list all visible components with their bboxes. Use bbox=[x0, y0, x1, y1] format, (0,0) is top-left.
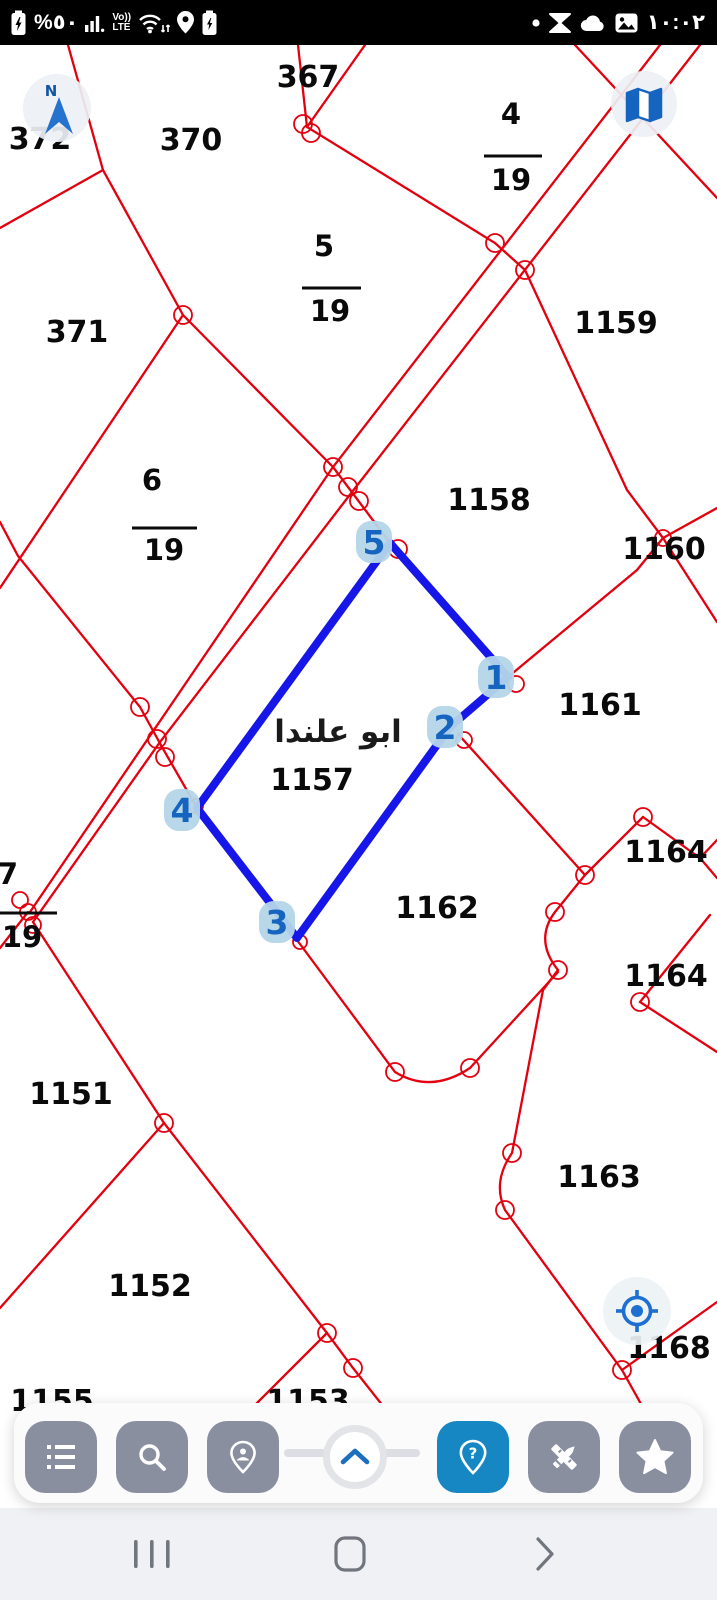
svg-text:3: 3 bbox=[266, 903, 289, 942]
back-button[interactable] bbox=[505, 1508, 585, 1600]
notification-dot-icon bbox=[532, 19, 540, 27]
fraction-denominator: 19 bbox=[310, 294, 350, 328]
battery-charging-icon bbox=[10, 10, 27, 36]
parcel-label: 1161 bbox=[558, 688, 642, 723]
vertex-badge-5[interactable]: 5 bbox=[356, 521, 392, 563]
map-layers-button[interactable] bbox=[611, 71, 677, 137]
map-canvas[interactable]: 372 370 367 371 1159 1158 1160 1161 1157… bbox=[0, 45, 717, 1600]
pencil-ruler-icon bbox=[546, 1439, 582, 1475]
svg-text:?: ? bbox=[469, 1445, 478, 1463]
wifi-updown-icon bbox=[138, 11, 170, 35]
parcel-label: 1164 bbox=[624, 835, 708, 870]
parcel-label: 1164 bbox=[624, 959, 708, 994]
parcel-label: 1160 bbox=[622, 532, 706, 567]
clock-label: ١٠:٠٢ bbox=[647, 10, 705, 35]
gallery-icon bbox=[615, 13, 638, 33]
person-pin-icon bbox=[229, 1440, 257, 1474]
vertex-badge-4[interactable]: 4 bbox=[164, 789, 200, 831]
cloud-icon bbox=[580, 13, 606, 32]
fraction-numerator: 7 bbox=[0, 857, 18, 891]
battery-percent-label: %٥٠ bbox=[34, 12, 78, 33]
signal-strength-icon bbox=[85, 12, 105, 34]
fraction-denominator: 19 bbox=[144, 533, 184, 567]
status-left-cluster: %٥٠ Vo)) LTE bbox=[10, 10, 218, 36]
favorites-button[interactable] bbox=[619, 1421, 691, 1493]
star-icon bbox=[636, 1439, 674, 1475]
legend-list-button[interactable] bbox=[25, 1421, 97, 1493]
fraction-denominator: 19 bbox=[2, 920, 42, 954]
search-icon bbox=[137, 1442, 167, 1472]
compass-north-label: N bbox=[45, 82, 58, 100]
parcel-label: 367 bbox=[277, 60, 340, 95]
recents-button[interactable] bbox=[112, 1508, 192, 1600]
home-icon bbox=[333, 1535, 367, 1573]
parcel-label: 1159 bbox=[574, 306, 658, 341]
status-right-cluster: ١٠:٠٢ bbox=[532, 10, 705, 35]
home-button[interactable] bbox=[310, 1508, 390, 1600]
parcel-label: 1163 bbox=[557, 1160, 641, 1195]
vertex-badge-2[interactable]: 2 bbox=[427, 706, 463, 748]
list-icon bbox=[46, 1444, 76, 1470]
hourglass-icon bbox=[549, 13, 571, 33]
measure-tools-button[interactable] bbox=[528, 1421, 600, 1493]
parcel-label: 1158 bbox=[447, 483, 531, 518]
selected-parcel-label: 1157 bbox=[270, 763, 354, 798]
folded-map-icon bbox=[627, 89, 661, 121]
fraction-numerator: 4 bbox=[501, 97, 521, 131]
volte-icon: Vo)) LTE bbox=[112, 13, 131, 33]
svg-text:2: 2 bbox=[434, 708, 457, 747]
parcel-label: 1151 bbox=[29, 1077, 113, 1112]
fraction-numerator: 5 bbox=[314, 229, 334, 263]
svg-text:1: 1 bbox=[485, 658, 508, 697]
map-background bbox=[0, 45, 717, 1600]
android-navigation-bar bbox=[0, 1508, 717, 1600]
parcel-label: 1162 bbox=[395, 891, 479, 926]
fraction-denominator: 19 bbox=[491, 163, 531, 197]
phone-screen: %٥٠ Vo)) LTE bbox=[0, 0, 717, 1600]
parcel-label: 1152 bbox=[108, 1269, 192, 1304]
vertex-badge-1[interactable]: 1 bbox=[478, 656, 514, 698]
compass-control[interactable]: N bbox=[23, 74, 91, 142]
help-button[interactable]: ? bbox=[437, 1421, 509, 1493]
back-chevron-icon bbox=[534, 1536, 556, 1572]
recents-icon bbox=[130, 1539, 174, 1569]
fraction-numerator: 6 bbox=[142, 463, 162, 497]
parcel-label: 371 bbox=[46, 315, 109, 350]
parcel-label: 370 bbox=[160, 123, 223, 158]
chevron-up-icon bbox=[338, 1447, 372, 1467]
search-button[interactable] bbox=[116, 1421, 188, 1493]
location-pin-icon bbox=[177, 11, 194, 34]
my-location-button[interactable] bbox=[603, 1277, 671, 1345]
expand-handle-button[interactable] bbox=[323, 1425, 387, 1489]
battery-saver-icon bbox=[201, 10, 218, 36]
help-pin-icon: ? bbox=[458, 1439, 488, 1475]
status-bar: %٥٠ Vo)) LTE bbox=[0, 0, 717, 45]
svg-text:4: 4 bbox=[171, 791, 194, 830]
vertex-badge-3[interactable]: 3 bbox=[259, 901, 295, 943]
place-name-label: ابو علندا bbox=[274, 714, 402, 750]
svg-text:5: 5 bbox=[363, 523, 386, 562]
locate-person-button[interactable] bbox=[207, 1421, 279, 1493]
